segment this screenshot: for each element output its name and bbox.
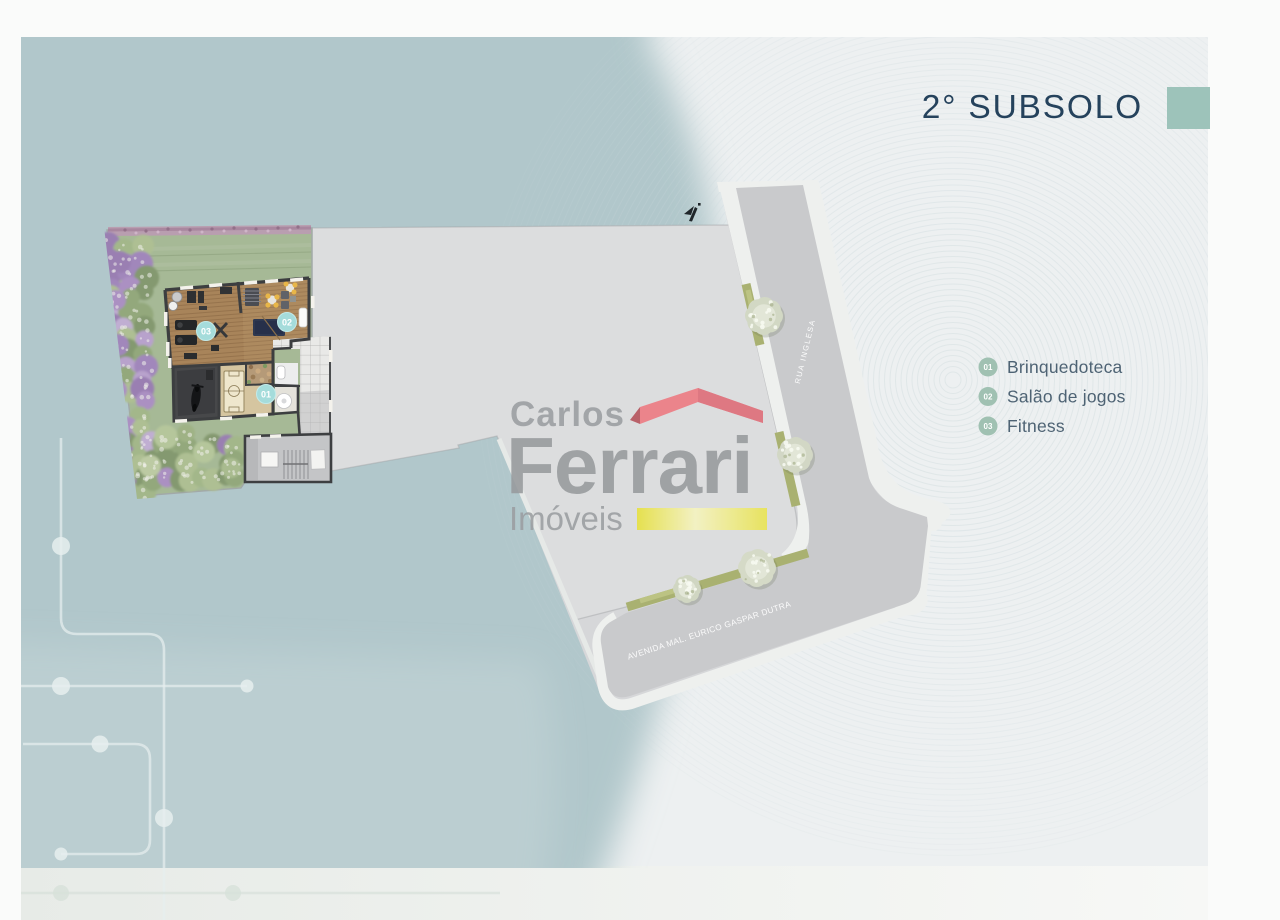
svg-text:03: 03 <box>201 326 211 336</box>
svg-text:Ferrari: Ferrari <box>506 421 752 510</box>
svg-text:Salão de jogos: Salão de jogos <box>1007 387 1126 407</box>
svg-text:2° SUBSOLO: 2° SUBSOLO <box>922 89 1143 126</box>
svg-text:02: 02 <box>282 317 292 327</box>
svg-text:01: 01 <box>261 389 271 399</box>
svg-text:02: 02 <box>984 393 993 402</box>
svg-text:Fitness: Fitness <box>1007 416 1065 436</box>
svg-text:03: 03 <box>984 422 993 431</box>
svg-text:Brinquedoteca: Brinquedoteca <box>1007 357 1123 377</box>
svg-text:01: 01 <box>984 363 993 372</box>
svg-text:Imóveis: Imóveis <box>509 500 623 537</box>
